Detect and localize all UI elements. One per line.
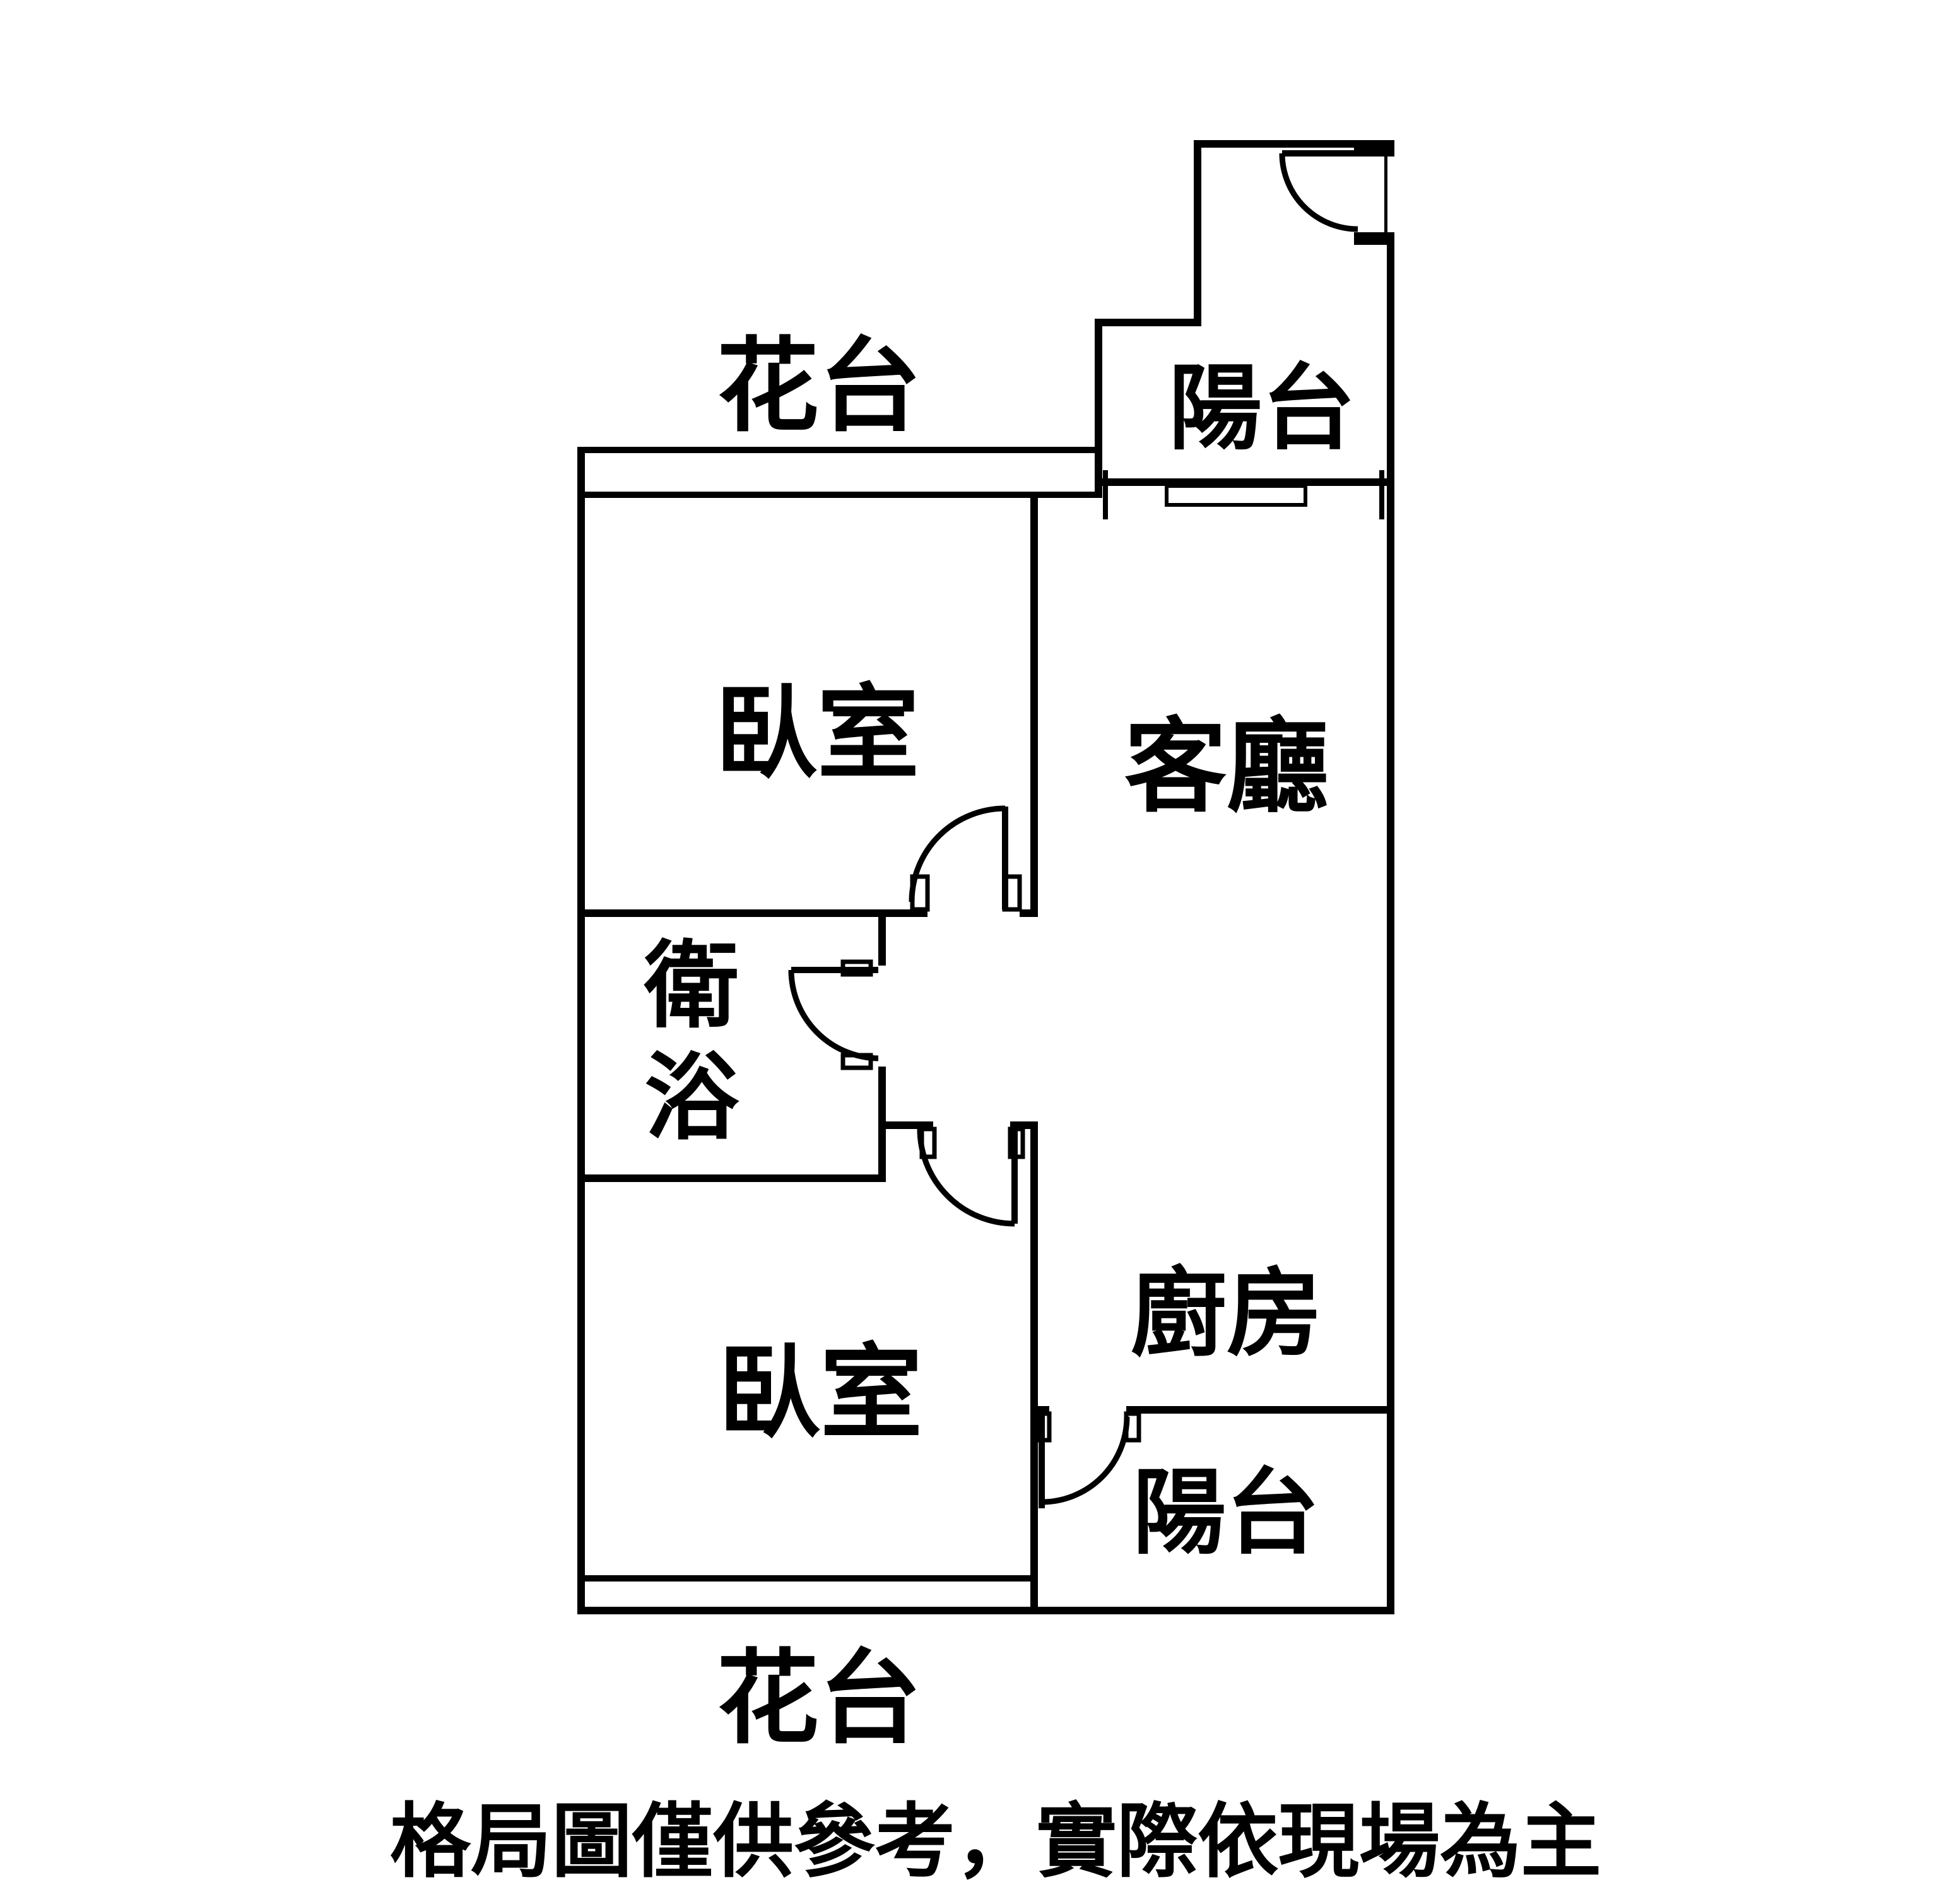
door-leaf bbox=[1011, 1129, 1018, 1224]
window-end-tick-left bbox=[1103, 470, 1108, 519]
wall-bathroom-right-upper bbox=[878, 909, 886, 966]
label-bedroom-bottom: 臥室 bbox=[718, 1334, 922, 1453]
floor-plan-canvas: 花台 陽台 臥室 客廳 衛 浴 廚房 臥室 陽台 花台 格局圖僅供參考，實際依現… bbox=[0, 0, 1949, 1904]
label-flower-terrace-top: 花台 bbox=[717, 328, 921, 446]
flower-terrace-top-inner-line bbox=[577, 492, 1102, 498]
wall-bedroom1-bottom-left bbox=[577, 909, 927, 917]
wall-outer-left bbox=[577, 447, 585, 1614]
label-kitchen: 廚房 bbox=[1131, 1258, 1322, 1369]
door-frame-line bbox=[1384, 157, 1387, 232]
door-leaf bbox=[791, 967, 878, 973]
wall-bathroom-bottom bbox=[577, 1174, 886, 1182]
label-bedroom-top: 臥室 bbox=[715, 675, 919, 793]
wall-balcony-top-left-lower bbox=[1095, 319, 1102, 498]
window-sill bbox=[1167, 486, 1305, 505]
door-leaf bbox=[1039, 1414, 1045, 1508]
door-leaf bbox=[1002, 807, 1008, 909]
label-living-room: 客廳 bbox=[1124, 708, 1329, 827]
wall-living-left bbox=[1030, 492, 1038, 917]
disclaimer-caption: 格局圖僅供參考，實際依現場為主 bbox=[390, 1795, 1601, 1889]
flower-terrace-bottom-inner-line bbox=[577, 1575, 1038, 1582]
background bbox=[0, 0, 1949, 1904]
label-bathroom-char-1: 衛 bbox=[644, 931, 739, 1041]
wall-bottom-edge bbox=[577, 1607, 1394, 1614]
wall-outer-right-upper bbox=[1387, 140, 1394, 157]
door-jamb bbox=[1354, 232, 1387, 245]
wall-bedroom1-bottom-right bbox=[1020, 909, 1038, 917]
floor-plan-page: 花台 陽台 臥室 客廳 衛 浴 廚房 臥室 陽台 花台 格局圖僅供參考，實際依現… bbox=[0, 0, 1949, 1904]
label-bathroom-char-2: 浴 bbox=[644, 1043, 739, 1153]
window-end-tick-right bbox=[1379, 470, 1384, 519]
wall-kitchen-left bbox=[1030, 1121, 1038, 1414]
wall-balcony-top-left-upper bbox=[1194, 140, 1201, 326]
label-balcony-bottom: 陽台 bbox=[1133, 1458, 1319, 1567]
label-flower-terrace-bottom: 花台 bbox=[717, 1640, 921, 1758]
flower-terrace-top-outer-line bbox=[577, 447, 1102, 453]
door-leaf bbox=[1282, 150, 1354, 157]
wall-kitchen-bottom-right bbox=[1126, 1406, 1394, 1414]
wall-balcony-top-step bbox=[1095, 319, 1201, 326]
label-balcony-top: 陽台 bbox=[1169, 354, 1355, 463]
door-jamb bbox=[1354, 144, 1387, 157]
